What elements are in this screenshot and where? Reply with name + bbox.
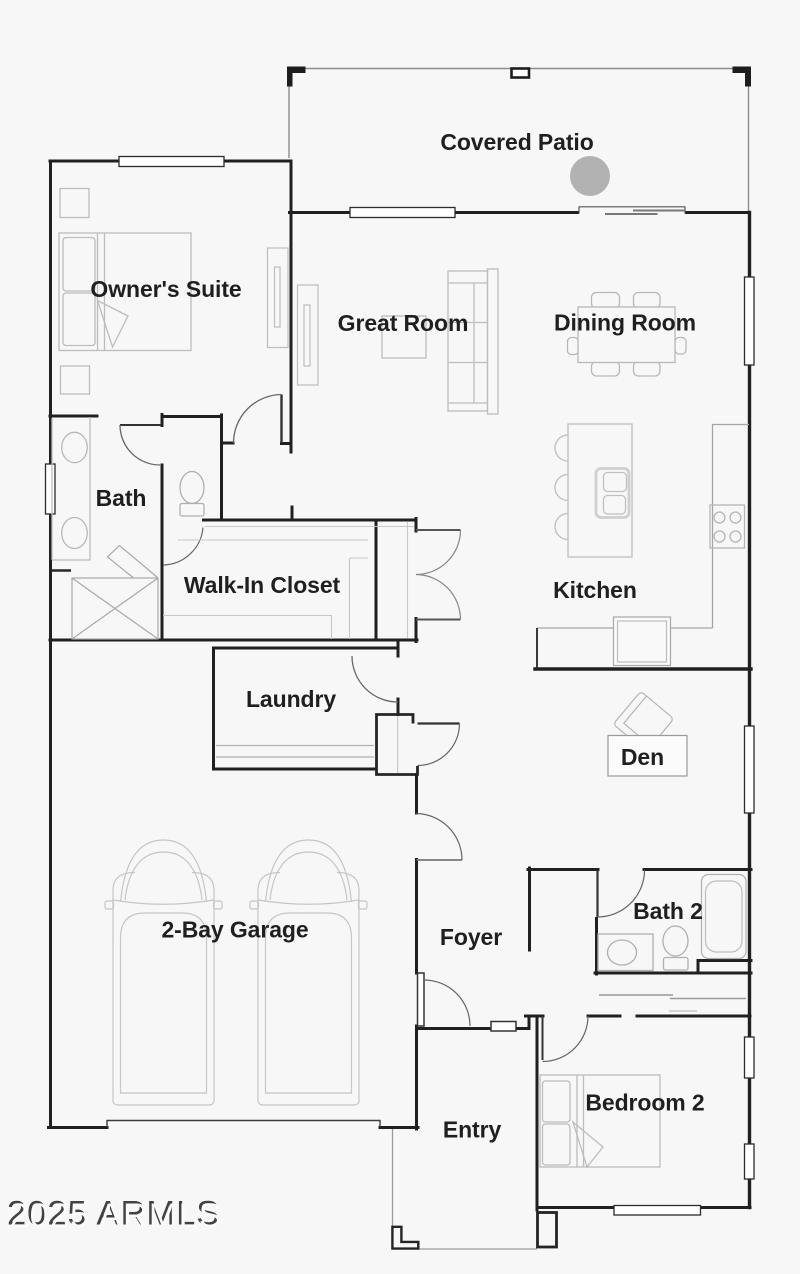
svg-text:Owner's Suite: Owner's Suite: [90, 276, 241, 302]
svg-text:Entry: Entry: [443, 1117, 502, 1143]
svg-text:2025 ARMLS: 2025 ARMLS: [10, 1197, 223, 1235]
svg-text:Walk-In Closet: Walk-In Closet: [184, 572, 341, 598]
svg-text:Bedroom 2: Bedroom 2: [585, 1090, 704, 1116]
svg-text:Bath 2: Bath 2: [633, 898, 703, 924]
svg-text:Covered Patio: Covered Patio: [440, 129, 593, 155]
svg-text:2-Bay Garage: 2-Bay Garage: [161, 917, 308, 943]
svg-text:Den: Den: [621, 744, 664, 770]
svg-text:Dining Room: Dining Room: [554, 310, 696, 336]
svg-text:Kitchen: Kitchen: [553, 577, 637, 603]
svg-text:Bath: Bath: [96, 485, 147, 511]
svg-text:Foyer: Foyer: [440, 924, 502, 950]
svg-text:Great Room: Great Room: [338, 310, 469, 336]
svg-text:Laundry: Laundry: [246, 686, 336, 712]
